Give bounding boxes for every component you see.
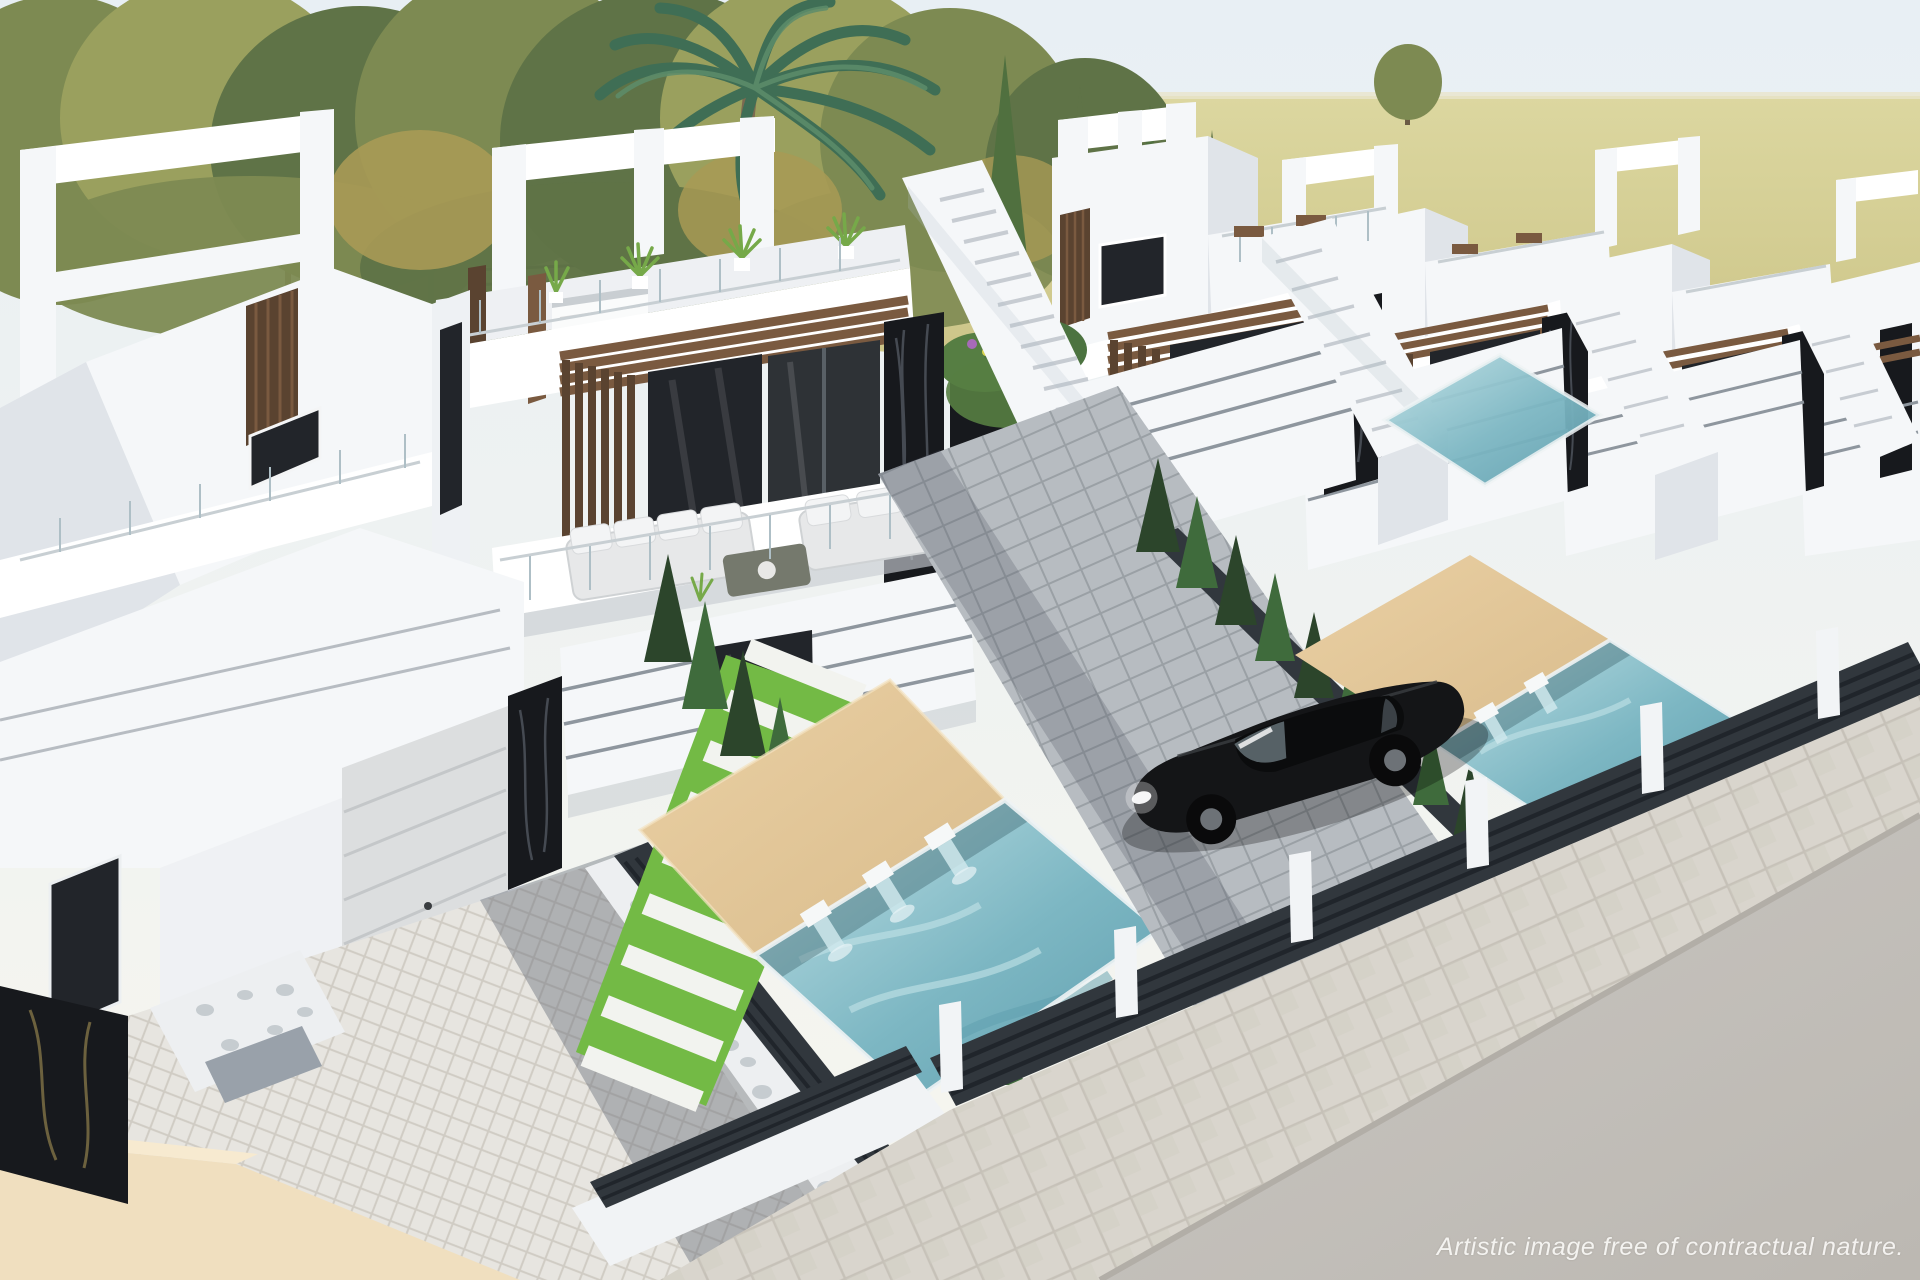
disclaimer-caption: Artistic image free of contractual natur… [1437,1233,1904,1262]
render-canvas [0,0,1920,1280]
window [440,322,462,515]
window [1100,235,1165,307]
architectural-render-image: Artistic image free of contractual natur… [0,0,1920,1280]
marble-pillar [508,676,562,890]
